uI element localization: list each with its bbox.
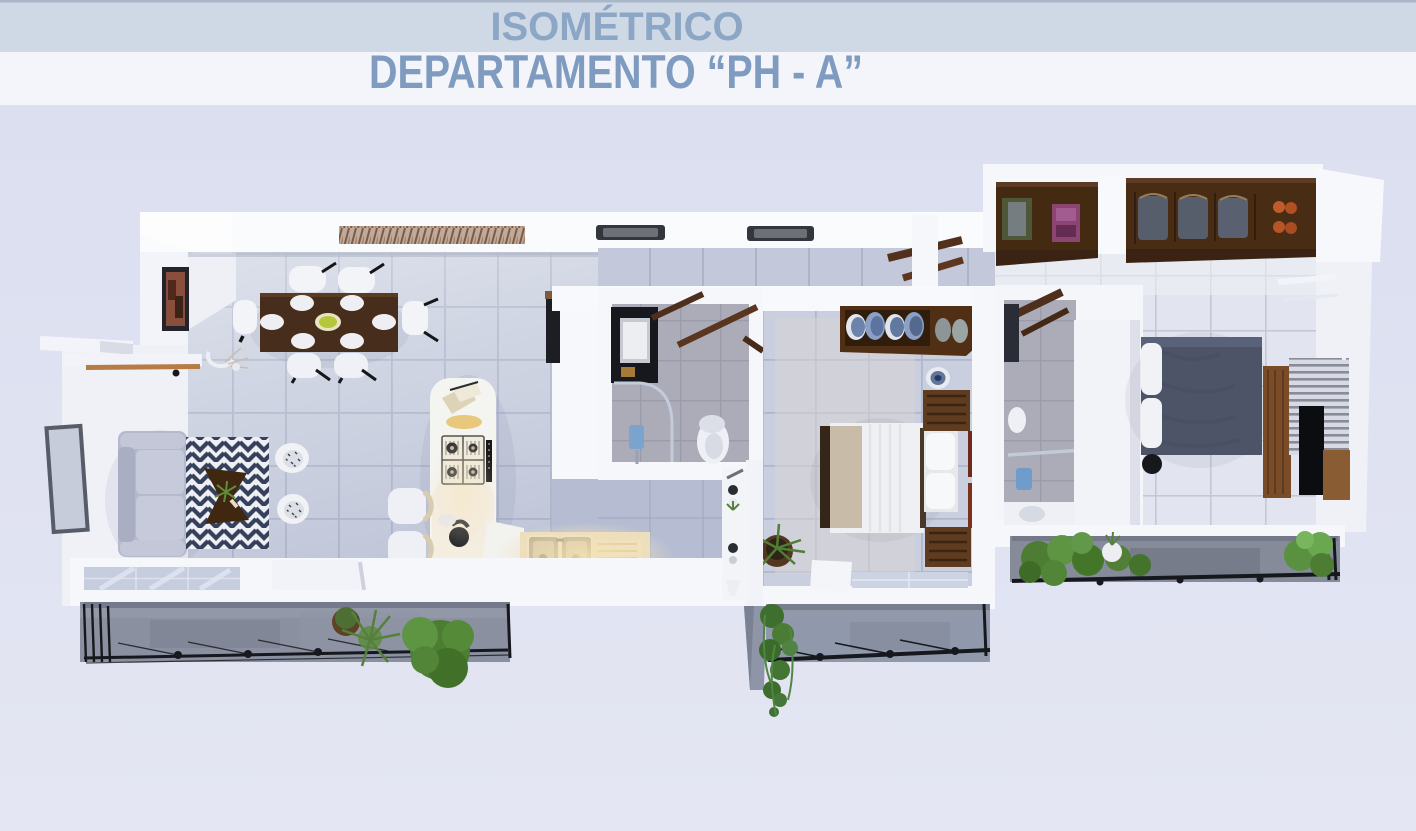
svg-text:DEPARTAMENTO “PH - A”: DEPARTAMENTO “PH - A” — [369, 47, 863, 99]
svg-text:ISOMÉTRICO: ISOMÉTRICO — [490, 4, 743, 49]
